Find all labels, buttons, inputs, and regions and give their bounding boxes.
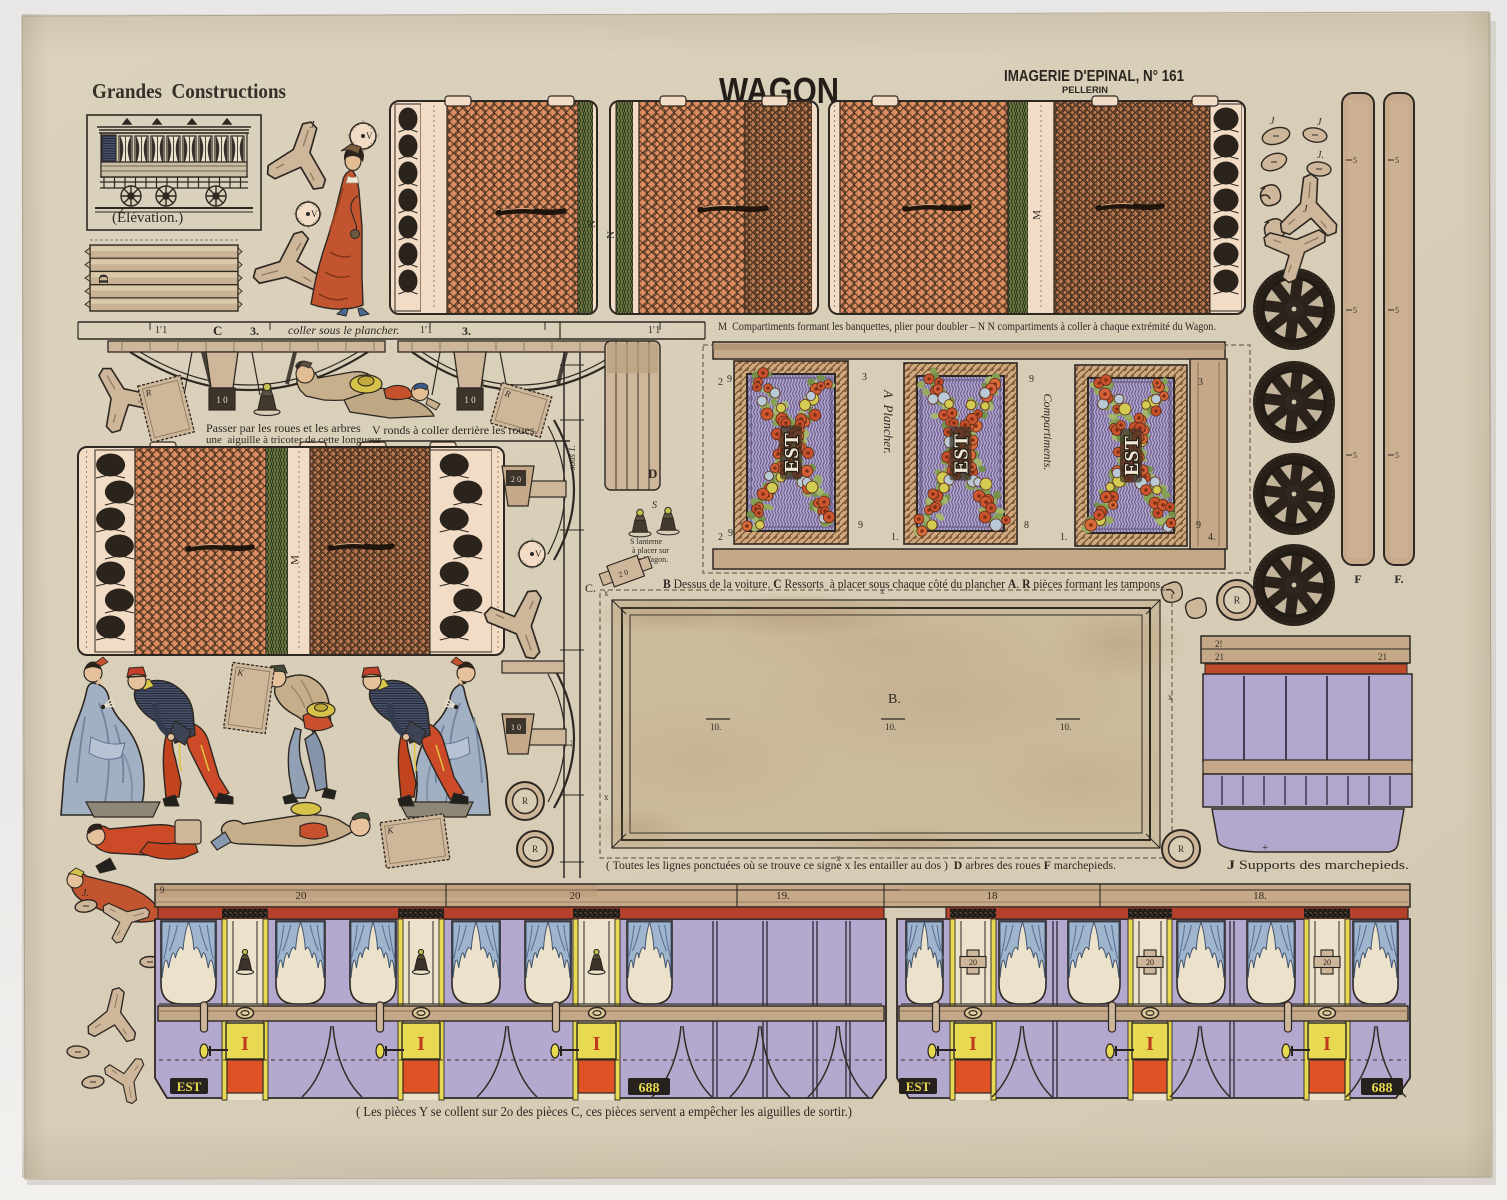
svg-text:5: 5 (1353, 156, 1357, 165)
svg-text:M: M (289, 555, 301, 565)
svg-text:J: J (310, 120, 315, 131)
svg-text:EST: EST (951, 433, 973, 474)
svg-text:V: V (311, 209, 318, 219)
svg-text:I: I (969, 1033, 977, 1055)
svg-text:I: I (1323, 1033, 1331, 1055)
svg-text:x: x (604, 588, 609, 598)
svg-text:21: 21 (1378, 652, 1387, 662)
svg-text:S: S (652, 500, 657, 511)
svg-text:2 0: 2 0 (511, 475, 521, 484)
svg-text:V: V (535, 549, 542, 559)
svg-text:D: D (648, 466, 657, 481)
svg-text:PELLERIN: PELLERIN (1062, 85, 1108, 95)
svg-text:5: 5 (1395, 156, 1399, 165)
svg-text:C: C (213, 323, 222, 338)
svg-text:B Dessus de la voiture. C Ress: B Dessus de la voiture. C Ressorts à pla… (663, 576, 1163, 591)
svg-text:4.: 4. (1208, 532, 1216, 543)
svg-text:coller sous le plancher.: coller sous le plancher. (288, 323, 399, 337)
svg-text:R: R (1178, 844, 1184, 854)
svg-text:20: 20 (1146, 958, 1154, 967)
svg-text:3.: 3. (250, 324, 259, 338)
svg-text:B.: B. (888, 692, 901, 707)
svg-text:20: 20 (1323, 958, 1331, 967)
svg-text:Compartiments.: Compartiments. (1041, 393, 1055, 470)
svg-text:1ʹ1: 1ʹ1 (155, 325, 167, 336)
svg-text:R: R (1234, 596, 1241, 607)
svg-text:10.: 10. (885, 722, 896, 732)
svg-text:18: 18 (987, 890, 999, 902)
svg-text:M: M (1031, 210, 1043, 220)
svg-text:Passer par les roues et les ar: Passer par les roues et les arbres (206, 421, 361, 435)
svg-text:( Toutes les lignes ponctuées: ( Toutes les lignes ponctuées où se trou… (606, 858, 1116, 872)
svg-text:J: J (1317, 117, 1322, 128)
svg-text:x: x (880, 586, 885, 596)
svg-text:20: 20 (570, 890, 582, 902)
svg-text:9: 9 (1029, 374, 1034, 385)
svg-text:9: 9 (727, 374, 732, 385)
svg-text:1 0: 1 0 (511, 723, 521, 732)
svg-text:EST: EST (177, 1079, 202, 1094)
svg-text:5: 5 (1353, 451, 1357, 460)
svg-text:F: F (1354, 572, 1361, 586)
svg-text:1.: 1. (1060, 532, 1068, 543)
svg-text:2: 2 (718, 532, 723, 543)
svg-text:M Compartiments formant les b: M Compartiments formant les banquettes, … (718, 319, 1216, 333)
svg-text:EST: EST (781, 432, 803, 473)
svg-text:21: 21 (1215, 652, 1224, 662)
svg-text:V ronds à coller derrière les: V ronds à coller derrière les roues. (372, 423, 537, 437)
svg-text:2!: 2! (1215, 639, 1223, 649)
svg-text:à placer sur: à placer sur (632, 546, 669, 555)
svg-text:1ʹ1: 1ʹ1 (420, 325, 432, 336)
svg-text:I: I (593, 1033, 601, 1055)
svg-text:9: 9 (728, 528, 733, 539)
svg-text:9: 9 (1196, 520, 1201, 531)
svg-text:9: 9 (858, 520, 863, 531)
svg-text:V: V (366, 131, 373, 141)
svg-text:3: 3 (862, 372, 867, 383)
svg-text:EST: EST (906, 1079, 931, 1094)
svg-text:une aiguille à tricoter de ce: une aiguille à tricoter de cette longueu… (206, 434, 381, 446)
svg-text:EST: EST (1121, 435, 1143, 476)
svg-text:20: 20 (969, 958, 977, 967)
svg-text:10.: 10. (710, 722, 721, 732)
svg-text:8: 8 (1024, 520, 1029, 531)
svg-text:3: 3 (1198, 377, 1203, 388)
svg-text:J Supports des marchepieds.: J Supports des marchepieds. (1227, 858, 1409, 872)
svg-text:3.: 3. (462, 324, 471, 338)
svg-text:5: 5 (1395, 451, 1399, 460)
svg-text:19.: 19. (776, 890, 790, 902)
svg-text:A Plancher.: A Plancher. (881, 389, 896, 454)
svg-text:2: 2 (718, 377, 723, 388)
svg-text:1 0: 1 0 (216, 395, 228, 405)
svg-text:688: 688 (1372, 1081, 1393, 1096)
svg-text:1 0: 1 0 (464, 395, 476, 405)
svg-text:x: x (604, 792, 609, 802)
svg-text:IMAGERIE D'EPINAL, N° 161: IMAGERIE D'EPINAL, N° 161 (1004, 68, 1184, 85)
svg-text:5: 5 (1353, 306, 1357, 315)
svg-text:F.: F. (1394, 572, 1403, 586)
svg-text:J: J (1303, 204, 1308, 215)
svg-text:688: 688 (639, 1081, 660, 1096)
svg-text:20: 20 (296, 890, 308, 902)
svg-text:J.: J. (1317, 150, 1324, 161)
svg-text:9: 9 (160, 885, 165, 895)
svg-text:x: x (1168, 692, 1173, 702)
svg-text:I: I (417, 1033, 425, 1055)
svg-text:+: + (1262, 842, 1268, 854)
svg-text:S lanterne: S lanterne (630, 537, 663, 546)
svg-text:10.: 10. (1060, 722, 1071, 732)
svg-text:1ʹ1: 1ʹ1 (648, 325, 660, 336)
svg-text:D: D (97, 274, 112, 284)
svg-text:( Les pièces Y se collent sur: ( Les pièces Y se collent sur 2o des piè… (356, 1105, 852, 1120)
svg-text:(Élévation.): (Élévation.) (112, 209, 183, 226)
svg-text:C.: C. (585, 581, 596, 595)
svg-text:18.: 18. (1253, 890, 1267, 902)
svg-text:J.: J. (82, 888, 89, 899)
svg-text:Grandes Constructions: Grandes Constructions (92, 79, 286, 103)
svg-text:I: I (1146, 1033, 1154, 1055)
svg-text:I: I (241, 1033, 249, 1055)
svg-text:R: R (522, 796, 528, 806)
svg-text:J: J (1270, 116, 1275, 127)
svg-text:1.: 1. (891, 532, 899, 543)
svg-text:R: R (532, 844, 538, 854)
svg-text:5: 5 (1395, 306, 1399, 315)
